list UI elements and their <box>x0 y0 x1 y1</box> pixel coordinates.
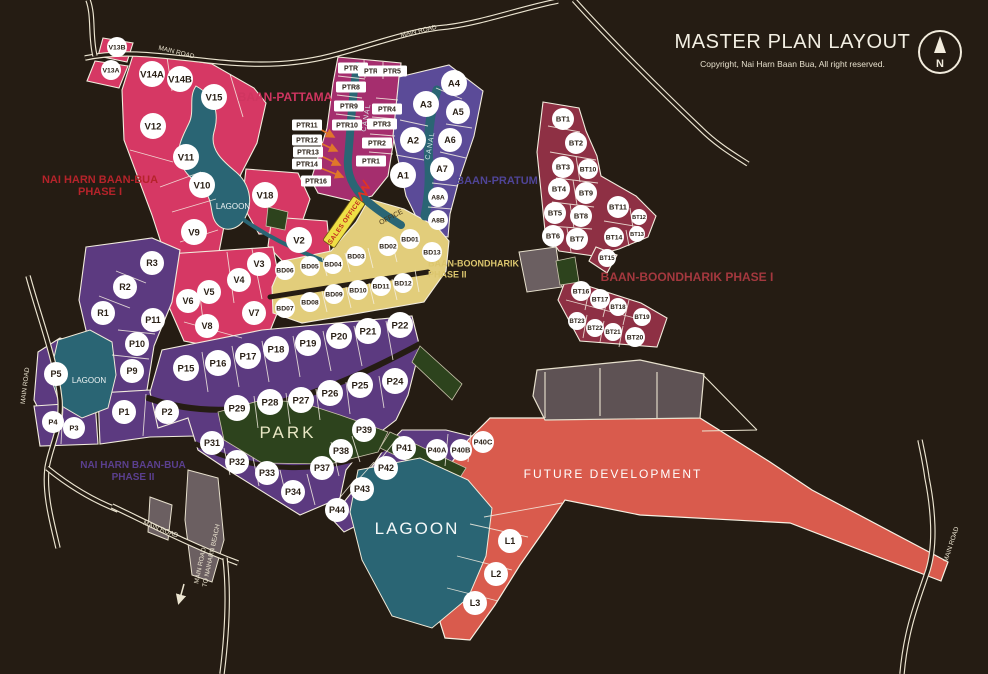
svg-text:BT21: BT21 <box>605 329 621 336</box>
plot-BT23[interactable]: BT23 <box>568 312 586 330</box>
plot-V12[interactable]: V12 <box>140 113 166 139</box>
svg-text:BD12: BD12 <box>394 280 412 287</box>
plot-V15[interactable]: V15 <box>201 84 227 110</box>
plot-BT16[interactable]: BT16 <box>571 281 591 301</box>
plot-P24[interactable]: P24 <box>382 368 408 394</box>
svg-text:PTR8: PTR8 <box>342 84 360 91</box>
plot-V6[interactable]: V6 <box>176 289 200 313</box>
plot-A5[interactable]: A5 <box>446 100 470 124</box>
svg-text:P42: P42 <box>378 463 394 473</box>
plot-P25[interactable]: P25 <box>347 372 373 398</box>
road-label-road-right: MAIN ROAD <box>943 526 961 563</box>
svg-text:BT18: BT18 <box>610 304 626 311</box>
plot-P44[interactable]: P44 <box>325 498 349 522</box>
svg-text:A1: A1 <box>397 170 410 181</box>
svg-text:BD08: BD08 <box>301 299 319 306</box>
svg-text:P3: P3 <box>69 424 78 433</box>
svg-text:P41: P41 <box>396 443 412 453</box>
plot-V13B[interactable]: V13B <box>107 37 127 57</box>
svg-text:BT6: BT6 <box>546 232 560 241</box>
svg-text:BT12: BT12 <box>632 215 646 221</box>
svg-text:P43: P43 <box>354 484 370 494</box>
master-plan-canvas: MAIN ROADMAIN ROADMAIN ROADMAIN ROADMAIN… <box>0 0 988 674</box>
plot-PTR11[interactable]: PTR11 <box>292 120 322 131</box>
plot-PTR1[interactable]: PTR1 <box>356 156 386 167</box>
svg-text:V15: V15 <box>206 92 224 103</box>
plot-PTR2[interactable]: PTR2 <box>362 138 392 149</box>
svg-text:BT2: BT2 <box>569 139 583 148</box>
plot-R2[interactable]: R2 <box>113 275 137 299</box>
area-label-lagoon-3: LAGOON <box>375 519 460 538</box>
plot-P22[interactable]: P22 <box>387 312 413 338</box>
plot-P32[interactable]: P32 <box>225 450 249 474</box>
svg-text:V14B: V14B <box>168 74 192 85</box>
plot-P21[interactable]: P21 <box>355 318 381 344</box>
plot-P29[interactable]: P29 <box>224 395 250 421</box>
svg-text:PTR16: PTR16 <box>305 178 327 185</box>
plot-BT17[interactable]: BT17 <box>590 289 610 309</box>
plot-BD06[interactable]: BD06 <box>275 260 295 280</box>
plot-BT14[interactable]: BT14 <box>604 227 624 247</box>
svg-text:A2: A2 <box>407 135 419 146</box>
plot-BT8[interactable]: BT8 <box>570 205 592 227</box>
plot-V14A[interactable]: V14A <box>139 61 165 87</box>
svg-text:V2: V2 <box>293 235 305 246</box>
svg-text:BT23: BT23 <box>569 318 585 325</box>
area-label-lagoon-1: LAGOON <box>216 202 250 211</box>
plot-P9[interactable]: P9 <box>120 359 144 383</box>
svg-text:PTR11: PTR11 <box>296 122 318 129</box>
svg-text:PTR14: PTR14 <box>296 161 318 168</box>
plot-P3[interactable]: P3 <box>63 417 85 439</box>
plot-V7[interactable]: V7 <box>242 301 266 325</box>
plot-P41[interactable]: P41 <box>392 436 416 460</box>
svg-text:P26: P26 <box>322 388 339 399</box>
plot-BT7[interactable]: BT7 <box>566 228 588 250</box>
plot-P39[interactable]: P39 <box>352 418 376 442</box>
svg-text:V18: V18 <box>257 190 274 201</box>
plot-P42[interactable]: P42 <box>374 456 398 480</box>
plot-V14B[interactable]: V14B <box>167 66 193 92</box>
svg-text:P31: P31 <box>204 438 220 448</box>
svg-text:BT8: BT8 <box>574 212 588 221</box>
svg-text:BT7: BT7 <box>570 235 584 244</box>
plot-R1[interactable]: R1 <box>91 301 115 325</box>
svg-text:P40B: P40B <box>452 446 471 455</box>
plot-BD13[interactable]: BD13 <box>422 242 442 262</box>
plot-P40C[interactable]: P40C <box>472 431 494 453</box>
plot-A7[interactable]: A7 <box>430 157 454 181</box>
svg-text:P22: P22 <box>392 320 409 331</box>
svg-text:BD04: BD04 <box>324 261 342 268</box>
road-label-road-left: MAIN ROAD <box>20 367 31 405</box>
svg-text:A5: A5 <box>452 107 464 117</box>
plot-P28[interactable]: P28 <box>257 389 283 415</box>
plot-P17[interactable]: P17 <box>235 343 261 369</box>
plot-BD10[interactable]: BD10 <box>348 280 368 300</box>
plot-P2[interactable]: P2 <box>155 400 179 424</box>
area-label-boondharik2: BAAN-BOONDHARIKPHASE II <box>428 259 519 280</box>
title-block: MASTER PLAN LAYOUT Copyright, Nai Harn B… <box>645 31 940 69</box>
plot-L3[interactable]: L3 <box>463 591 487 615</box>
plot-BT20[interactable]: BT20 <box>625 327 645 347</box>
svg-text:PTR1: PTR1 <box>362 158 380 165</box>
svg-text:BD05: BD05 <box>301 263 319 270</box>
plot-BD04[interactable]: BD04 <box>323 254 343 274</box>
plot-BD05[interactable]: BD05 <box>300 256 320 276</box>
plot-BT12[interactable]: BT12 <box>631 209 647 225</box>
copyright-note: Copyright, Nai Harn Baan Bua, All right … <box>645 59 940 69</box>
plot-P38[interactable]: P38 <box>329 439 353 463</box>
svg-text:A8B: A8B <box>431 217 445 224</box>
plot-P19[interactable]: P19 <box>295 330 321 356</box>
svg-text:A3: A3 <box>420 99 432 110</box>
plot-P5[interactable]: P5 <box>44 362 68 386</box>
svg-text:V8: V8 <box>201 321 212 331</box>
plot-V3[interactable]: V3 <box>247 252 271 276</box>
svg-text:P33: P33 <box>259 468 275 478</box>
svg-text:P24: P24 <box>387 376 405 387</box>
svg-text:PTR12: PTR12 <box>296 137 318 144</box>
plot-V8[interactable]: V8 <box>195 314 219 338</box>
plot-R3[interactable]: R3 <box>140 251 164 275</box>
svg-text:V13B: V13B <box>108 44 125 51</box>
plot-PTR3[interactable]: PTR3 <box>367 119 397 130</box>
svg-text:PTR10: PTR10 <box>336 122 358 129</box>
svg-text:P25: P25 <box>352 380 370 391</box>
svg-text:BT11: BT11 <box>609 203 627 212</box>
plot-P20[interactable]: P20 <box>326 323 352 349</box>
plot-V5[interactable]: V5 <box>197 280 221 304</box>
svg-text:V3: V3 <box>253 259 264 269</box>
svg-text:P9: P9 <box>126 366 137 376</box>
svg-text:BT9: BT9 <box>579 189 593 198</box>
svg-text:A7: A7 <box>436 164 448 174</box>
svg-text:P15: P15 <box>178 363 196 374</box>
plot-BD01[interactable]: BD01 <box>400 229 420 249</box>
plot-BD11[interactable]: BD11 <box>371 276 391 296</box>
svg-text:BT5: BT5 <box>548 209 562 218</box>
svg-text:P40C: P40C <box>474 438 493 447</box>
plot-BT5[interactable]: BT5 <box>544 202 566 224</box>
plot-BD07[interactable]: BD07 <box>275 298 295 318</box>
zones-layer <box>34 38 948 640</box>
svg-text:L3: L3 <box>470 598 481 608</box>
svg-text:BD07: BD07 <box>276 305 294 312</box>
plot-BD08[interactable]: BD08 <box>300 292 320 312</box>
svg-text:P20: P20 <box>331 331 348 342</box>
plot-PTR8[interactable]: PTR8 <box>336 82 366 93</box>
svg-text:BD09: BD09 <box>325 291 343 298</box>
area-label-boondharik1: BAAN-BOONDHARIK PHASE I <box>601 270 774 284</box>
plot-V4[interactable]: V4 <box>227 268 251 292</box>
plot-P1[interactable]: P1 <box>112 400 136 424</box>
plot-BD12[interactable]: BD12 <box>393 273 413 293</box>
plot-BT13[interactable]: BT13 <box>629 226 645 242</box>
plot-A4[interactable]: A4 <box>441 70 467 96</box>
svg-text:PTR4: PTR4 <box>378 106 396 113</box>
svg-text:P44: P44 <box>329 505 345 515</box>
svg-text:P2: P2 <box>161 407 172 417</box>
svg-text:P32: P32 <box>229 457 245 467</box>
area-label-lagoon-2: LAGOON <box>72 376 106 385</box>
area-label-baan-pratum: BAAN-PRATUM <box>456 175 538 187</box>
plot-PTR16[interactable]: PTR16 <box>301 176 331 187</box>
plot-BD09[interactable]: BD09 <box>324 284 344 304</box>
plot-V18[interactable]: V18 <box>252 182 278 208</box>
svg-text:V13A: V13A <box>102 67 119 74</box>
plot-BT3[interactable]: BT3 <box>552 156 574 178</box>
svg-text:L1: L1 <box>505 536 516 546</box>
svg-text:V5: V5 <box>203 287 214 297</box>
plot-BT6[interactable]: BT6 <box>542 225 564 247</box>
plot-PTR4[interactable]: PTR4 <box>372 104 402 115</box>
plot-P26[interactable]: P26 <box>317 380 343 406</box>
plot-P16[interactable]: P16 <box>205 350 231 376</box>
plot-P33[interactable]: P33 <box>255 461 279 485</box>
plot-A3[interactable]: A3 <box>413 91 439 117</box>
south-arrow-icon <box>179 584 184 602</box>
plot-V11[interactable]: V11 <box>173 144 199 170</box>
page-title: MASTER PLAN LAYOUT <box>645 31 940 54</box>
plot-BD02[interactable]: BD02 <box>378 236 398 256</box>
svg-text:P21: P21 <box>360 326 378 337</box>
plot-BT18[interactable]: BT18 <box>609 298 627 316</box>
svg-text:A6: A6 <box>444 135 456 145</box>
plot-BT15[interactable]: BT15 <box>598 249 616 267</box>
svg-text:P5: P5 <box>50 369 61 379</box>
plot-P4[interactable]: P4 <box>42 411 64 433</box>
svg-text:PTR9: PTR9 <box>340 103 358 110</box>
plot-P18[interactable]: P18 <box>263 336 289 362</box>
svg-text:PTR5: PTR5 <box>383 68 401 75</box>
svg-text:V12: V12 <box>145 121 162 132</box>
svg-text:P16: P16 <box>210 358 227 369</box>
plot-V9[interactable]: V9 <box>181 219 207 245</box>
plot-V13A[interactable]: V13A <box>101 60 121 80</box>
svg-text:P37: P37 <box>314 463 330 473</box>
svg-text:BT13: BT13 <box>630 232 644 238</box>
svg-text:P1: P1 <box>118 407 129 417</box>
svg-text:V6: V6 <box>182 296 193 306</box>
plot-P15[interactable]: P15 <box>173 355 199 381</box>
area-label-park: PARK <box>259 423 316 442</box>
svg-text:R2: R2 <box>119 282 131 292</box>
svg-text:PTR2: PTR2 <box>368 140 386 147</box>
svg-text:P27: P27 <box>293 395 310 406</box>
road-top-surface <box>85 1 558 64</box>
plot-L1[interactable]: L1 <box>498 529 522 553</box>
svg-text:BT10: BT10 <box>580 166 597 173</box>
svg-text:BT1: BT1 <box>556 115 570 124</box>
svg-text:BD03: BD03 <box>347 253 365 260</box>
plot-L2[interactable]: L2 <box>484 562 508 586</box>
plot-P34[interactable]: P34 <box>281 480 305 504</box>
plot-A2[interactable]: A2 <box>400 127 426 153</box>
plot-A1[interactable]: A1 <box>390 162 416 188</box>
svg-text:R3: R3 <box>146 258 158 268</box>
plot-PTR10[interactable]: PTR10 <box>332 120 362 131</box>
svg-text:P4: P4 <box>48 418 58 427</box>
plot-BT4[interactable]: BT4 <box>548 178 570 200</box>
svg-text:R1: R1 <box>97 308 109 318</box>
road-label-road-top-mid: MAIN ROAD <box>400 24 438 39</box>
svg-text:A4: A4 <box>448 78 461 89</box>
plot-PTR13[interactable]: PTR13 <box>293 147 323 158</box>
plot-PTR9[interactable]: PTR9 <box>334 101 364 112</box>
svg-text:BT14: BT14 <box>606 234 623 241</box>
svg-text:BD10: BD10 <box>349 287 367 294</box>
plot-BT2[interactable]: BT2 <box>565 132 587 154</box>
svg-text:BD11: BD11 <box>372 283 389 290</box>
area-label-baan-pattama: BAAN-PATTAMA <box>238 90 333 104</box>
svg-text:BT3: BT3 <box>556 163 570 172</box>
area-label-phase2: NAI HARN BAAN-BUAPHASE II <box>80 460 186 483</box>
svg-text:P18: P18 <box>268 344 285 355</box>
plot-A8B[interactable]: A8B <box>428 210 448 230</box>
plot-BT22[interactable]: BT22 <box>586 319 604 337</box>
svg-text:P38: P38 <box>333 446 349 456</box>
svg-text:PTR13: PTR13 <box>297 149 319 156</box>
svg-text:V4: V4 <box>233 275 244 285</box>
svg-text:BT15: BT15 <box>599 255 615 262</box>
svg-text:P10: P10 <box>129 339 145 349</box>
plot-P27[interactable]: P27 <box>288 387 314 413</box>
plot-P40B[interactable]: P40B <box>450 439 472 461</box>
zone-grey-plot <box>519 247 562 292</box>
svg-text:L2: L2 <box>491 569 502 579</box>
zone-future-development <box>440 418 948 640</box>
svg-text:BT4: BT4 <box>552 185 567 194</box>
plot-P11[interactable]: P11 <box>141 308 165 332</box>
svg-text:BD13: BD13 <box>423 249 441 256</box>
plot-V2[interactable]: V2 <box>286 227 312 253</box>
svg-text:P19: P19 <box>300 338 317 349</box>
map-svg: MAIN ROADMAIN ROADMAIN ROADMAIN ROADMAIN… <box>0 0 988 674</box>
plot-PTR12[interactable]: PTR12 <box>292 135 322 146</box>
svg-text:P28: P28 <box>262 397 279 408</box>
plot-PTR14[interactable]: PTR14 <box>292 159 322 170</box>
svg-text:A8A: A8A <box>431 194 445 201</box>
svg-text:BT16: BT16 <box>573 288 590 295</box>
area-label-future: FUTURE DEVELOPMENT <box>524 467 703 481</box>
svg-text:V10: V10 <box>194 180 211 191</box>
plot-P31[interactable]: P31 <box>200 431 224 455</box>
svg-text:BD01: BD01 <box>401 236 419 243</box>
zone-existing-structures <box>533 360 704 420</box>
plot-P43[interactable]: P43 <box>350 477 374 501</box>
svg-text:V9: V9 <box>188 227 200 238</box>
svg-text:BT17: BT17 <box>592 296 609 303</box>
plot-BT9[interactable]: BT9 <box>575 182 597 204</box>
svg-text:P39: P39 <box>356 425 372 435</box>
plot-BT11[interactable]: BT11 <box>607 196 629 218</box>
svg-text:P29: P29 <box>229 403 246 414</box>
plot-BT19[interactable]: BT19 <box>633 308 651 326</box>
plot-BT1[interactable]: BT1 <box>552 108 574 130</box>
svg-text:BD02: BD02 <box>379 243 397 250</box>
plot-A6[interactable]: A6 <box>438 128 462 152</box>
zone-green-bt <box>556 257 579 285</box>
svg-text:P17: P17 <box>240 351 257 362</box>
svg-text:V7: V7 <box>248 308 259 318</box>
svg-text:PTR3: PTR3 <box>373 121 391 128</box>
plot-P37[interactable]: P37 <box>310 456 334 480</box>
road-top-right-outline <box>574 0 748 164</box>
svg-text:BT19: BT19 <box>634 314 650 321</box>
svg-text:P34: P34 <box>285 487 301 497</box>
plot-BT10[interactable]: BT10 <box>578 159 598 179</box>
svg-text:P40A: P40A <box>428 446 447 455</box>
svg-text:V14A: V14A <box>140 69 164 80</box>
svg-text:BD06: BD06 <box>276 267 294 274</box>
plot-BT21[interactable]: BT21 <box>604 323 622 341</box>
plot-V10[interactable]: V10 <box>189 172 215 198</box>
plot-P10[interactable]: P10 <box>125 332 149 356</box>
plot-P40A[interactable]: P40A <box>426 439 448 461</box>
svg-text:BT22: BT22 <box>587 325 603 332</box>
plot-PTR5[interactable]: PTR5 <box>377 66 407 77</box>
zone-park-ne <box>412 346 462 400</box>
plot-A8A[interactable]: A8A <box>428 187 448 207</box>
svg-text:V11: V11 <box>178 152 195 163</box>
svg-text:BT20: BT20 <box>627 334 644 341</box>
svg-text:P11: P11 <box>145 315 161 325</box>
plot-BD03[interactable]: BD03 <box>346 246 366 266</box>
